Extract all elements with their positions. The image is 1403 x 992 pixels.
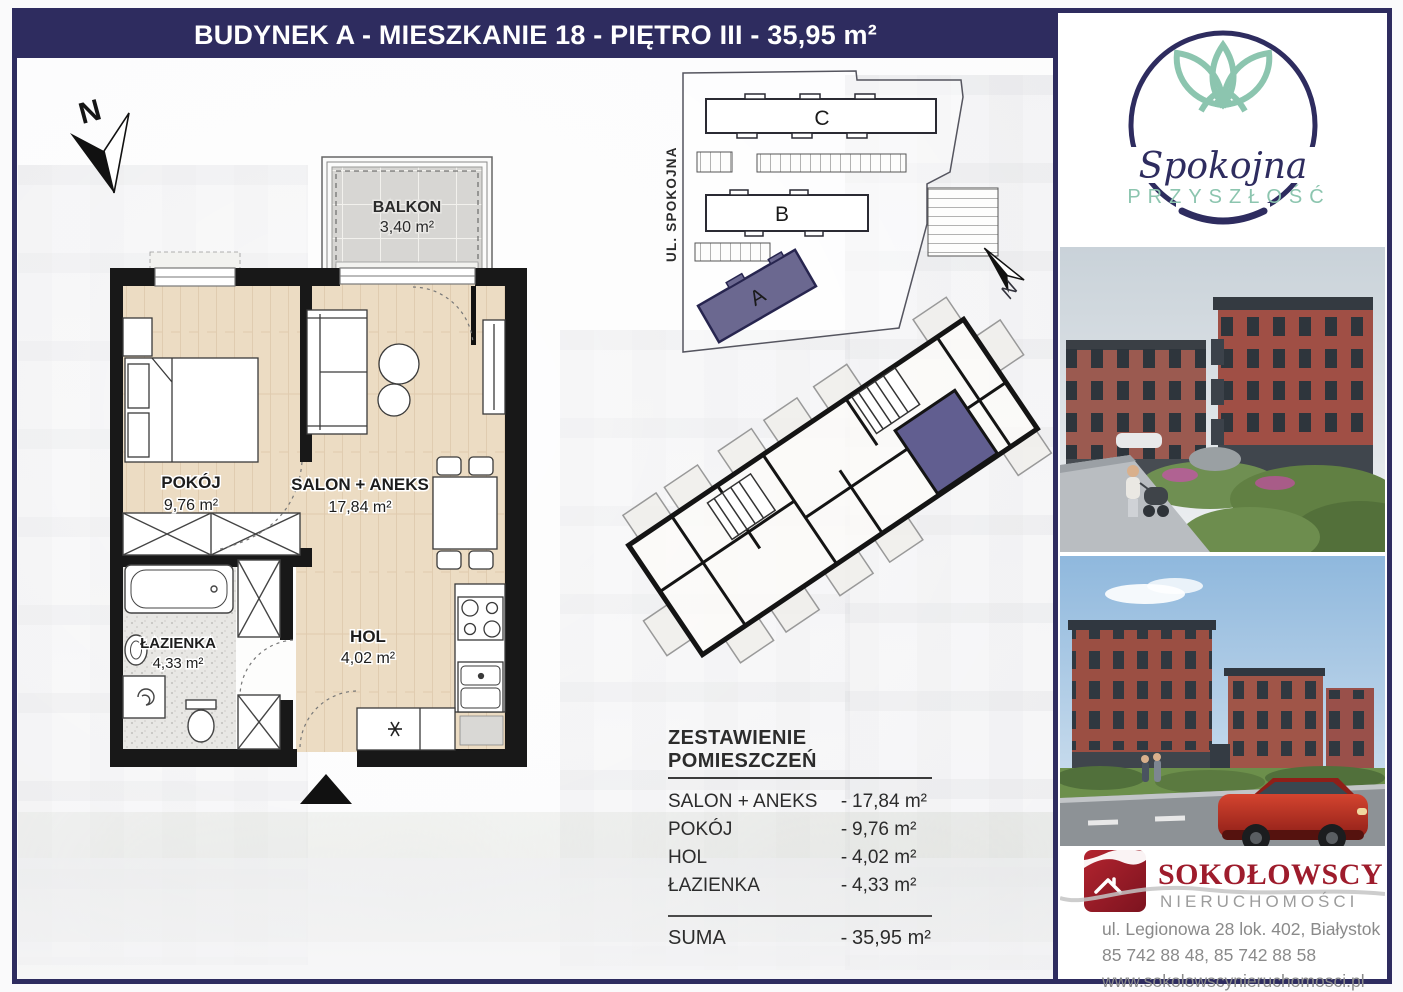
brand-name-caps: PRZYSZŁOŚĆ — [1127, 184, 1330, 208]
entrance-arrow-icon — [300, 774, 352, 804]
site-building-c: C — [706, 94, 936, 138]
washing-machine — [123, 676, 165, 718]
room-summary-table: ZESTAWIENIE POMIESZCZEŃ SALON + ANEKS - … — [668, 727, 932, 959]
chair — [469, 551, 493, 569]
agency-website: www.sokolowscynieruchomosci.pl — [1102, 968, 1380, 992]
stove — [458, 597, 503, 640]
chair — [437, 457, 461, 475]
toilet-tank — [186, 700, 216, 709]
building-photo-1 — [1060, 247, 1385, 552]
balcony-area: 3,40 m² — [380, 219, 435, 236]
coffee-table — [378, 384, 410, 416]
flyer-page: BUDYNEK A - MIESZKANIE 18 - PIĘTRO III -… — [0, 0, 1403, 992]
page-title: BUDYNEK A - MIESZKANIE 18 - PIĘTRO III -… — [194, 20, 877, 51]
agency-address: ul. Legionowa 28 lok. 402, Białystok — [1102, 916, 1380, 942]
room-area-salon: 17,84 m² — [328, 499, 392, 516]
agency-contact: ul. Legionowa 28 lok. 402, Białystok 85 … — [1102, 916, 1380, 992]
lotus-icon — [1177, 45, 1270, 111]
agency-phones: 85 742 88 48, 85 742 88 58 — [1102, 942, 1380, 968]
agency-subtitle: NIERUCHOMOŚCI — [1160, 892, 1358, 912]
summary-title: ZESTAWIENIE POMIESZCZEŃ — [668, 727, 932, 779]
balcony-door-leaf — [471, 286, 476, 345]
plan-compass: N — [70, 93, 129, 193]
toilet — [188, 710, 214, 742]
chair — [437, 551, 461, 569]
storey-plan — [598, 279, 1058, 694]
coffee-table — [379, 344, 419, 384]
table-divider — [668, 915, 932, 917]
room-area-hol: 4,02 m² — [341, 650, 396, 667]
plan-compass-n: N — [75, 93, 104, 130]
room-label-salon: SALON + ANEKS — [291, 475, 429, 494]
site-building-c-label: C — [814, 107, 829, 130]
table-row: ŁAZIENKA - 4,33 m² — [668, 875, 932, 903]
right-panel: Spokojna PRZYSZŁOŚĆ — [1053, 8, 1392, 984]
dining-table — [433, 477, 497, 549]
site-compass-n: N — [997, 278, 1024, 303]
room-label-hol: HOL — [350, 627, 386, 646]
room-label-lazienka: ŁAZIENKA — [140, 635, 216, 652]
brand-logo: Spokojna PRZYSZŁOŚĆ — [1058, 15, 1387, 247]
nightstand — [123, 318, 152, 356]
room-area-pokoj: 9,76 m² — [164, 497, 219, 514]
table-row: POKÓJ - 9,76 m² — [668, 819, 932, 847]
window-sill — [150, 252, 240, 269]
room-label-pokoj: POKÓJ — [161, 473, 221, 492]
agency-block: SOKOŁOWSCY NIERUCHOMOŚCI ul. Legionowa 2… — [1060, 846, 1385, 976]
site-plan: C B A UL. SPOKOJNA N — [598, 55, 1058, 705]
street-label: UL. SPOKOJNA — [664, 146, 679, 262]
table-row: HOL - 4,02 m² — [668, 847, 932, 875]
building-photo-2 — [1060, 556, 1385, 846]
brand-name-script: Spokojna — [1139, 146, 1308, 187]
site-building-b-label: B — [775, 203, 789, 226]
fridge-cabinet — [357, 708, 455, 750]
agency-name: SOKOŁOWSCY — [1158, 858, 1383, 892]
site-building-b: B — [706, 190, 868, 236]
kitchen-sink — [458, 662, 503, 712]
balcony-label: BALKON — [373, 199, 441, 216]
pillow — [128, 364, 149, 408]
table-row: SALON + ANEKS - 17,84 m² — [668, 791, 932, 819]
title-banner: BUDYNEK A - MIESZKANIE 18 - PIĘTRO III -… — [14, 12, 1057, 58]
room-area-lazienka: 4,33 m² — [153, 655, 204, 672]
pillow — [128, 413, 149, 457]
table-total-row: SUMA - 35,95 m² — [668, 927, 932, 959]
apartment-floor-plan: N BALKON 3,40 m² — [58, 88, 562, 818]
chair — [469, 457, 493, 475]
